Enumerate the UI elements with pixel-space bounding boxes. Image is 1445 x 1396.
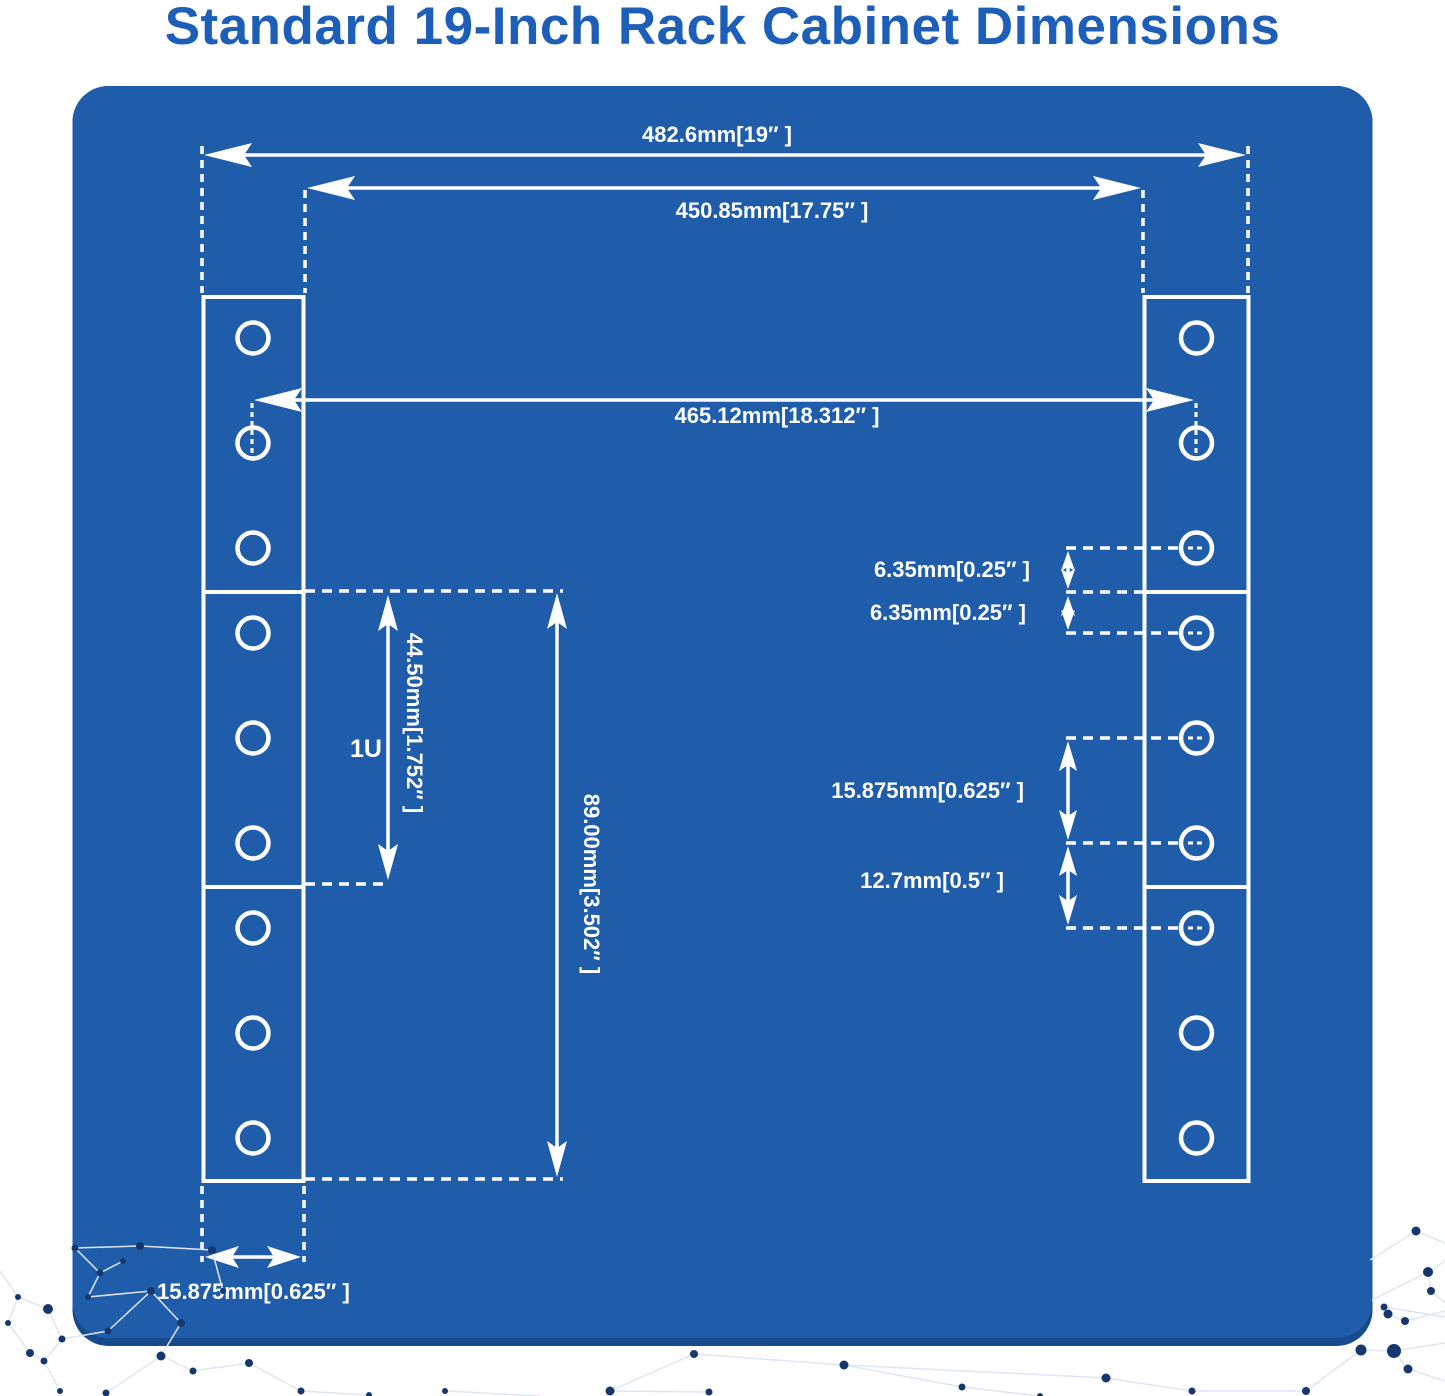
rack-dimensions-infographic: Standard 19-Inch Rack Cabinet Dimensions	[0, 0, 1445, 1396]
dimension-label-overall-width: 482.6mm[19″ ]	[642, 122, 792, 147]
blueprint-panel	[73, 86, 1373, 1338]
dimension-label-unit-height: 44.50mm[1.752″ ]	[402, 633, 427, 814]
dimension-label-flange-width: 15.875mm[0.625″ ]	[157, 1279, 350, 1304]
dimension-label-hole-pitch-boundary: 12.7mm[0.5″ ]	[860, 868, 1004, 893]
page-title: Standard 19-Inch Rack Cabinet Dimensions	[0, 0, 1445, 58]
dimension-label-hole-edge-bottom: 6.35mm[0.25″ ]	[870, 600, 1026, 625]
dimension-label-hole-span: 465.12mm[18.312″ ]	[674, 403, 879, 428]
dimension-label-unit: 1U	[350, 735, 382, 763]
dimension-label-hole-pitch: 15.875mm[0.625″ ]	[831, 778, 1024, 803]
dimension-label-hole-edge-top: 6.35mm[0.25″ ]	[874, 557, 1030, 582]
dimension-label-inner-width: 450.85mm[17.75″ ]	[676, 198, 869, 223]
rack-dimensions-diagram: 482.6mm[19″ ] 450.85mm[17.75″ ] 465.12mm…	[0, 0, 1445, 1396]
dimension-label-double-unit-height: 89.00mm[3.502″ ]	[579, 794, 604, 975]
